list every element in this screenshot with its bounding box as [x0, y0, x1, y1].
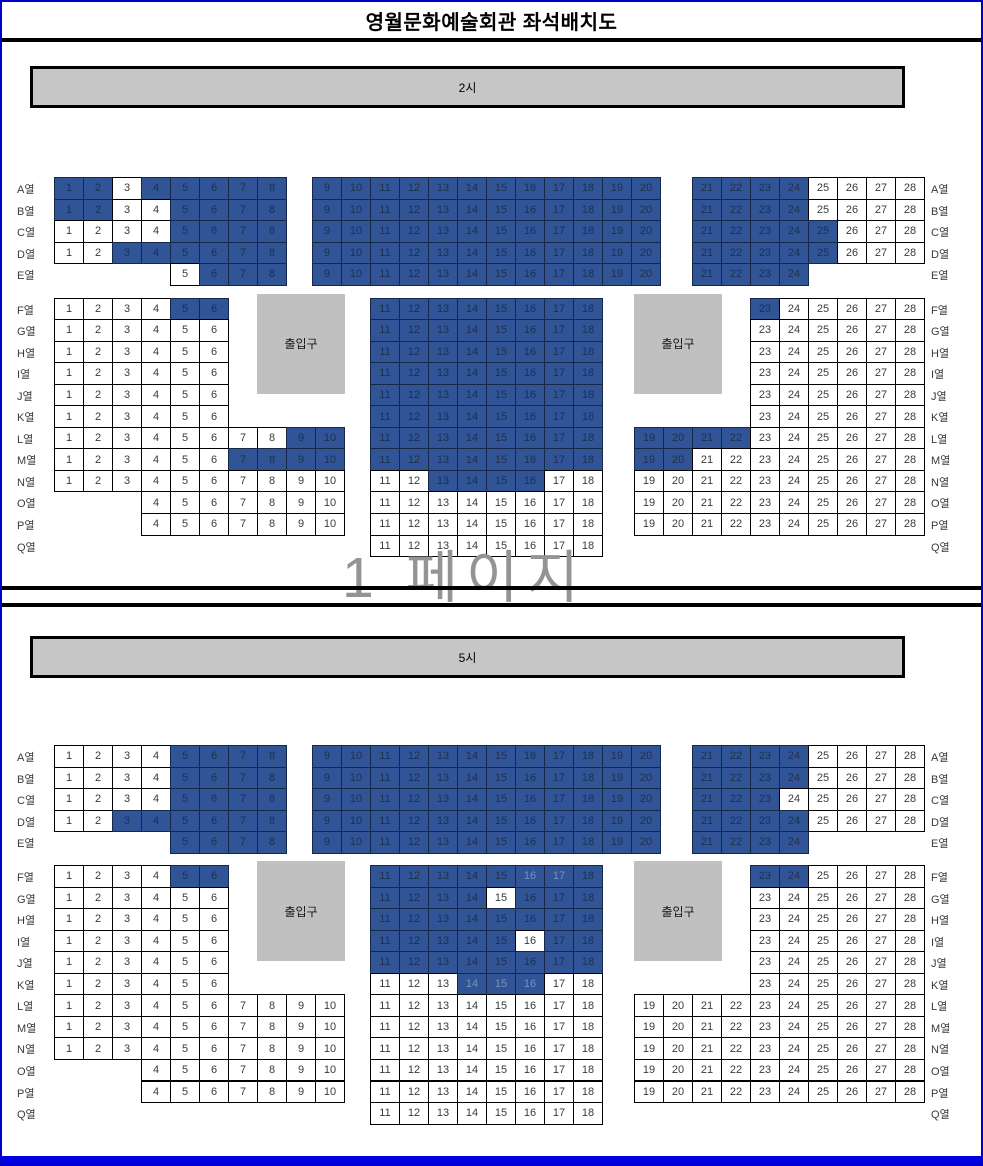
seat-s2-E19[interactable]: 19	[602, 831, 632, 854]
seat-s2-B1[interactable]: 1	[54, 767, 84, 790]
seat-s1-C25[interactable]: 25	[808, 220, 838, 243]
seat-s1-I1[interactable]: 1	[54, 362, 84, 385]
seat-s2-O9[interactable]: 9	[286, 1059, 316, 1082]
seat-s1-C4[interactable]: 4	[141, 220, 171, 243]
seat-s2-C3[interactable]: 3	[112, 788, 142, 811]
seat-s1-M9[interactable]: 9	[286, 448, 316, 471]
seat-s2-B9[interactable]: 9	[312, 767, 342, 790]
seat-s1-L13[interactable]: 13	[428, 427, 458, 450]
seat-s1-C24[interactable]: 24	[779, 220, 809, 243]
seat-s1-B6[interactable]: 6	[199, 199, 229, 222]
seat-s2-L11[interactable]: 11	[370, 994, 400, 1017]
seat-s2-H27[interactable]: 27	[866, 908, 896, 931]
seat-s1-L16[interactable]: 16	[515, 427, 545, 450]
seat-s1-B24[interactable]: 24	[779, 199, 809, 222]
seat-s1-K27[interactable]: 27	[866, 405, 896, 428]
seat-s1-D19[interactable]: 19	[602, 242, 632, 265]
seat-s1-C2[interactable]: 2	[83, 220, 113, 243]
seat-s1-D8[interactable]: 8	[257, 242, 287, 265]
seat-s2-O12[interactable]: 12	[399, 1059, 429, 1082]
seat-s1-H6[interactable]: 6	[199, 341, 229, 364]
seat-s1-L18[interactable]: 18	[573, 427, 603, 450]
seat-s2-L24[interactable]: 24	[779, 994, 809, 1017]
seat-s1-N17[interactable]: 17	[544, 470, 574, 493]
seat-s1-I26[interactable]: 26	[837, 362, 867, 385]
seat-s1-L26[interactable]: 26	[837, 427, 867, 450]
seat-s2-A2[interactable]: 2	[83, 745, 113, 768]
seat-s1-A3[interactable]: 3	[112, 177, 142, 200]
seat-s1-D28[interactable]: 28	[895, 242, 925, 265]
seat-s2-I25[interactable]: 25	[808, 930, 838, 953]
seat-s2-N22[interactable]: 22	[721, 1037, 751, 1060]
seat-s1-F3[interactable]: 3	[112, 298, 142, 321]
seat-s2-C28[interactable]: 28	[895, 788, 925, 811]
seat-s2-D11[interactable]: 11	[370, 810, 400, 833]
seat-s1-P24[interactable]: 24	[779, 513, 809, 536]
seat-s1-C10[interactable]: 10	[341, 220, 371, 243]
seat-s1-D11[interactable]: 11	[370, 242, 400, 265]
seat-s1-F14[interactable]: 14	[457, 298, 487, 321]
seat-s1-B17[interactable]: 17	[544, 199, 574, 222]
seat-s2-N1[interactable]: 1	[54, 1037, 84, 1060]
seat-s2-H4[interactable]: 4	[141, 908, 171, 931]
seat-s2-G11[interactable]: 11	[370, 887, 400, 910]
seat-s1-M5[interactable]: 5	[170, 448, 200, 471]
seat-s1-G17[interactable]: 17	[544, 319, 574, 342]
seat-s2-Q15[interactable]: 15	[486, 1102, 516, 1125]
seat-s2-M4[interactable]: 4	[141, 1016, 171, 1039]
seat-s1-E19[interactable]: 19	[602, 263, 632, 286]
seat-s2-G24[interactable]: 24	[779, 887, 809, 910]
seat-s2-N26[interactable]: 26	[837, 1037, 867, 1060]
seat-s2-N14[interactable]: 14	[457, 1037, 487, 1060]
seat-s1-C19[interactable]: 19	[602, 220, 632, 243]
seat-s2-F5[interactable]: 5	[170, 865, 200, 888]
seat-s1-J5[interactable]: 5	[170, 384, 200, 407]
seat-s2-N4[interactable]: 4	[141, 1037, 171, 1060]
seat-s2-M19[interactable]: 19	[634, 1016, 664, 1039]
seat-s1-B3[interactable]: 3	[112, 199, 142, 222]
seat-s2-O28[interactable]: 28	[895, 1059, 925, 1082]
seat-s2-C4[interactable]: 4	[141, 788, 171, 811]
seat-s2-I3[interactable]: 3	[112, 930, 142, 953]
seat-s1-K12[interactable]: 12	[399, 405, 429, 428]
seat-s2-K6[interactable]: 6	[199, 973, 229, 996]
seat-s2-N12[interactable]: 12	[399, 1037, 429, 1060]
seat-s1-D14[interactable]: 14	[457, 242, 487, 265]
seat-s1-B20[interactable]: 20	[631, 199, 661, 222]
seat-s2-L6[interactable]: 6	[199, 994, 229, 1017]
seat-s2-J18[interactable]: 18	[573, 951, 603, 974]
seat-s1-C18[interactable]: 18	[573, 220, 603, 243]
seat-s1-E5[interactable]: 5	[170, 263, 200, 286]
seat-s2-G5[interactable]: 5	[170, 887, 200, 910]
seat-s1-B25[interactable]: 25	[808, 199, 838, 222]
seat-s1-O13[interactable]: 13	[428, 491, 458, 514]
seat-s1-M25[interactable]: 25	[808, 448, 838, 471]
seat-s1-F12[interactable]: 12	[399, 298, 429, 321]
seat-s1-D10[interactable]: 10	[341, 242, 371, 265]
seat-s1-B13[interactable]: 13	[428, 199, 458, 222]
seat-s2-Q13[interactable]: 13	[428, 1102, 458, 1125]
seat-s2-J23[interactable]: 23	[750, 951, 780, 974]
seat-s2-D2[interactable]: 2	[83, 810, 113, 833]
seat-s2-L25[interactable]: 25	[808, 994, 838, 1017]
seat-s2-E6[interactable]: 6	[199, 831, 229, 854]
seat-s2-J25[interactable]: 25	[808, 951, 838, 974]
seat-s1-M2[interactable]: 2	[83, 448, 113, 471]
seat-s1-I28[interactable]: 28	[895, 362, 925, 385]
seat-s1-B9[interactable]: 9	[312, 199, 342, 222]
seat-s1-A27[interactable]: 27	[866, 177, 896, 200]
seat-s1-N6[interactable]: 6	[199, 470, 229, 493]
seat-s1-M8[interactable]: 8	[257, 448, 287, 471]
seat-s1-A26[interactable]: 26	[837, 177, 867, 200]
seat-s1-L3[interactable]: 3	[112, 427, 142, 450]
seat-s2-A11[interactable]: 11	[370, 745, 400, 768]
seat-s2-Q18[interactable]: 18	[573, 1102, 603, 1125]
seat-s2-K11[interactable]: 11	[370, 973, 400, 996]
seat-s2-O21[interactable]: 21	[692, 1059, 722, 1082]
seat-s2-M26[interactable]: 26	[837, 1016, 867, 1039]
seat-s1-I12[interactable]: 12	[399, 362, 429, 385]
seat-s1-C7[interactable]: 7	[228, 220, 258, 243]
seat-s2-G14[interactable]: 14	[457, 887, 487, 910]
seat-s1-F6[interactable]: 6	[199, 298, 229, 321]
seat-s1-I4[interactable]: 4	[141, 362, 171, 385]
seat-s2-B7[interactable]: 7	[228, 767, 258, 790]
seat-s1-C15[interactable]: 15	[486, 220, 516, 243]
seat-s2-A3[interactable]: 3	[112, 745, 142, 768]
seat-s2-A20[interactable]: 20	[631, 745, 661, 768]
seat-s2-C27[interactable]: 27	[866, 788, 896, 811]
seat-s2-N13[interactable]: 13	[428, 1037, 458, 1060]
seat-s2-J5[interactable]: 5	[170, 951, 200, 974]
seat-s1-B11[interactable]: 11	[370, 199, 400, 222]
seat-s1-C6[interactable]: 6	[199, 220, 229, 243]
seat-s1-E18[interactable]: 18	[573, 263, 603, 286]
seat-s2-K18[interactable]: 18	[573, 973, 603, 996]
seat-s1-D23[interactable]: 23	[750, 242, 780, 265]
seat-s2-K27[interactable]: 27	[866, 973, 896, 996]
seat-s2-A10[interactable]: 10	[341, 745, 371, 768]
seat-s2-H24[interactable]: 24	[779, 908, 809, 931]
seat-s1-K18[interactable]: 18	[573, 405, 603, 428]
seat-s1-O6[interactable]: 6	[199, 491, 229, 514]
seat-s2-P9[interactable]: 9	[286, 1081, 316, 1104]
seat-s2-E23[interactable]: 23	[750, 831, 780, 854]
seat-s2-D28[interactable]: 28	[895, 810, 925, 833]
seat-s2-H2[interactable]: 2	[83, 908, 113, 931]
seat-s2-C17[interactable]: 17	[544, 788, 574, 811]
seat-s2-N19[interactable]: 19	[634, 1037, 664, 1060]
seat-s1-G25[interactable]: 25	[808, 319, 838, 342]
seat-s1-C12[interactable]: 12	[399, 220, 429, 243]
seat-s1-J3[interactable]: 3	[112, 384, 142, 407]
seat-s1-O16[interactable]: 16	[515, 491, 545, 514]
seat-s2-L26[interactable]: 26	[837, 994, 867, 1017]
seat-s1-D21[interactable]: 21	[692, 242, 722, 265]
seat-s1-N22[interactable]: 22	[721, 470, 751, 493]
seat-s1-E15[interactable]: 15	[486, 263, 516, 286]
seat-s1-P8[interactable]: 8	[257, 513, 287, 536]
seat-s2-B27[interactable]: 27	[866, 767, 896, 790]
seat-s2-L9[interactable]: 9	[286, 994, 316, 1017]
seat-s2-I4[interactable]: 4	[141, 930, 171, 953]
seat-s2-D24[interactable]: 24	[779, 810, 809, 833]
seat-s2-K23[interactable]: 23	[750, 973, 780, 996]
seat-s1-K25[interactable]: 25	[808, 405, 838, 428]
seat-s1-E22[interactable]: 22	[721, 263, 751, 286]
seat-s2-M2[interactable]: 2	[83, 1016, 113, 1039]
seat-s2-K12[interactable]: 12	[399, 973, 429, 996]
seat-s1-N24[interactable]: 24	[779, 470, 809, 493]
seat-s1-N1[interactable]: 1	[54, 470, 84, 493]
seat-s2-D9[interactable]: 9	[312, 810, 342, 833]
seat-s2-C5[interactable]: 5	[170, 788, 200, 811]
seat-s2-B11[interactable]: 11	[370, 767, 400, 790]
seat-s2-A13[interactable]: 13	[428, 745, 458, 768]
seat-s2-J24[interactable]: 24	[779, 951, 809, 974]
seat-s1-N7[interactable]: 7	[228, 470, 258, 493]
seat-s2-P23[interactable]: 23	[750, 1081, 780, 1104]
seat-s2-I5[interactable]: 5	[170, 930, 200, 953]
seat-s2-D12[interactable]: 12	[399, 810, 429, 833]
seat-s1-K1[interactable]: 1	[54, 405, 84, 428]
seat-s1-D9[interactable]: 9	[312, 242, 342, 265]
seat-s1-A4[interactable]: 4	[141, 177, 171, 200]
seat-s1-K23[interactable]: 23	[750, 405, 780, 428]
seat-s2-P13[interactable]: 13	[428, 1081, 458, 1104]
seat-s2-D13[interactable]: 13	[428, 810, 458, 833]
seat-s1-N8[interactable]: 8	[257, 470, 287, 493]
seat-s1-L20[interactable]: 20	[663, 427, 693, 450]
seat-s2-A25[interactable]: 25	[808, 745, 838, 768]
seat-s2-K14[interactable]: 14	[457, 973, 487, 996]
seat-s2-G12[interactable]: 12	[399, 887, 429, 910]
seat-s1-O5[interactable]: 5	[170, 491, 200, 514]
seat-s1-E23[interactable]: 23	[750, 263, 780, 286]
seat-s2-D5[interactable]: 5	[170, 810, 200, 833]
seat-s1-A23[interactable]: 23	[750, 177, 780, 200]
seat-s1-I27[interactable]: 27	[866, 362, 896, 385]
seat-s1-M27[interactable]: 27	[866, 448, 896, 471]
seat-s2-L21[interactable]: 21	[692, 994, 722, 1017]
seat-s1-J4[interactable]: 4	[141, 384, 171, 407]
seat-s2-J14[interactable]: 14	[457, 951, 487, 974]
seat-s2-C24[interactable]: 24	[779, 788, 809, 811]
seat-s2-G2[interactable]: 2	[83, 887, 113, 910]
seat-s1-L14[interactable]: 14	[457, 427, 487, 450]
seat-s2-P20[interactable]: 20	[663, 1081, 693, 1104]
seat-s1-A13[interactable]: 13	[428, 177, 458, 200]
seat-s1-L27[interactable]: 27	[866, 427, 896, 450]
seat-s2-F11[interactable]: 11	[370, 865, 400, 888]
seat-s2-H18[interactable]: 18	[573, 908, 603, 931]
seat-s1-J24[interactable]: 24	[779, 384, 809, 407]
seat-s1-D13[interactable]: 13	[428, 242, 458, 265]
seat-s2-M5[interactable]: 5	[170, 1016, 200, 1039]
seat-s1-P10[interactable]: 10	[315, 513, 345, 536]
seat-s2-E8[interactable]: 8	[257, 831, 287, 854]
seat-s1-C11[interactable]: 11	[370, 220, 400, 243]
seat-s2-G26[interactable]: 26	[837, 887, 867, 910]
seat-s1-K16[interactable]: 16	[515, 405, 545, 428]
seat-s2-A26[interactable]: 26	[837, 745, 867, 768]
seat-s1-J6[interactable]: 6	[199, 384, 229, 407]
seat-s1-D24[interactable]: 24	[779, 242, 809, 265]
seat-s1-J12[interactable]: 12	[399, 384, 429, 407]
seat-s1-L23[interactable]: 23	[750, 427, 780, 450]
seat-s1-L1[interactable]: 1	[54, 427, 84, 450]
seat-s1-J17[interactable]: 17	[544, 384, 574, 407]
seat-s2-D19[interactable]: 19	[602, 810, 632, 833]
seat-s1-H28[interactable]: 28	[895, 341, 925, 364]
seat-s1-A22[interactable]: 22	[721, 177, 751, 200]
seat-s2-I14[interactable]: 14	[457, 930, 487, 953]
seat-s1-M24[interactable]: 24	[779, 448, 809, 471]
seat-s2-H12[interactable]: 12	[399, 908, 429, 931]
seat-s2-H1[interactable]: 1	[54, 908, 84, 931]
seat-s1-K4[interactable]: 4	[141, 405, 171, 428]
seat-s1-N19[interactable]: 19	[634, 470, 664, 493]
seat-s1-P21[interactable]: 21	[692, 513, 722, 536]
seat-s1-G24[interactable]: 24	[779, 319, 809, 342]
seat-s1-M15[interactable]: 15	[486, 448, 516, 471]
seat-s2-O25[interactable]: 25	[808, 1059, 838, 1082]
seat-s1-H14[interactable]: 14	[457, 341, 487, 364]
seat-s1-I23[interactable]: 23	[750, 362, 780, 385]
seat-s1-A28[interactable]: 28	[895, 177, 925, 200]
seat-s2-H23[interactable]: 23	[750, 908, 780, 931]
seat-s2-L13[interactable]: 13	[428, 994, 458, 1017]
seat-s2-G6[interactable]: 6	[199, 887, 229, 910]
seat-s2-P18[interactable]: 18	[573, 1081, 603, 1104]
seat-s1-C28[interactable]: 28	[895, 220, 925, 243]
seat-s1-N20[interactable]: 20	[663, 470, 693, 493]
seat-s2-J12[interactable]: 12	[399, 951, 429, 974]
seat-s1-F24[interactable]: 24	[779, 298, 809, 321]
seat-s2-E21[interactable]: 21	[692, 831, 722, 854]
seat-s1-L11[interactable]: 11	[370, 427, 400, 450]
seat-s1-P22[interactable]: 22	[721, 513, 751, 536]
seat-s2-M13[interactable]: 13	[428, 1016, 458, 1039]
seat-s2-A16[interactable]: 16	[515, 745, 545, 768]
seat-s1-B12[interactable]: 12	[399, 199, 429, 222]
seat-s2-N6[interactable]: 6	[199, 1037, 229, 1060]
seat-s2-G4[interactable]: 4	[141, 887, 171, 910]
seat-s1-D20[interactable]: 20	[631, 242, 661, 265]
seat-s1-I25[interactable]: 25	[808, 362, 838, 385]
seat-s2-D17[interactable]: 17	[544, 810, 574, 833]
seat-s2-P19[interactable]: 19	[634, 1081, 664, 1104]
seat-s2-C15[interactable]: 15	[486, 788, 516, 811]
seat-s2-P27[interactable]: 27	[866, 1081, 896, 1104]
seat-s1-G1[interactable]: 1	[54, 319, 84, 342]
seat-s1-G15[interactable]: 15	[486, 319, 516, 342]
seat-s2-H14[interactable]: 14	[457, 908, 487, 931]
seat-s1-J26[interactable]: 26	[837, 384, 867, 407]
seat-s2-D3[interactable]: 3	[112, 810, 142, 833]
seat-s2-A19[interactable]: 19	[602, 745, 632, 768]
seat-s1-C1[interactable]: 1	[54, 220, 84, 243]
seat-s2-B3[interactable]: 3	[112, 767, 142, 790]
seat-s2-J13[interactable]: 13	[428, 951, 458, 974]
seat-s2-N2[interactable]: 2	[83, 1037, 113, 1060]
seat-s1-C23[interactable]: 23	[750, 220, 780, 243]
seat-s1-B28[interactable]: 28	[895, 199, 925, 222]
seat-s2-P4[interactable]: 4	[141, 1081, 171, 1104]
seat-s1-K2[interactable]: 2	[83, 405, 113, 428]
seat-s1-P4[interactable]: 4	[141, 513, 171, 536]
seat-s1-L10[interactable]: 10	[315, 427, 345, 450]
seat-s2-E14[interactable]: 14	[457, 831, 487, 854]
seat-s1-E24[interactable]: 24	[779, 263, 809, 286]
seat-s2-B19[interactable]: 19	[602, 767, 632, 790]
seat-s1-P5[interactable]: 5	[170, 513, 200, 536]
seat-s1-L17[interactable]: 17	[544, 427, 574, 450]
seat-s1-F2[interactable]: 2	[83, 298, 113, 321]
seat-s2-D21[interactable]: 21	[692, 810, 722, 833]
seat-s2-C2[interactable]: 2	[83, 788, 113, 811]
seat-s2-F15[interactable]: 15	[486, 865, 516, 888]
seat-s1-A24[interactable]: 24	[779, 177, 809, 200]
seat-s2-A23[interactable]: 23	[750, 745, 780, 768]
seat-s2-M14[interactable]: 14	[457, 1016, 487, 1039]
seat-s1-K6[interactable]: 6	[199, 405, 229, 428]
seat-s1-C17[interactable]: 17	[544, 220, 574, 243]
seat-s2-O4[interactable]: 4	[141, 1059, 171, 1082]
seat-s1-B14[interactable]: 14	[457, 199, 487, 222]
seat-s1-F13[interactable]: 13	[428, 298, 458, 321]
seat-s2-B5[interactable]: 5	[170, 767, 200, 790]
seat-s2-E9[interactable]: 9	[312, 831, 342, 854]
seat-s1-D15[interactable]: 15	[486, 242, 516, 265]
seat-s2-G16[interactable]: 16	[515, 887, 545, 910]
seat-s2-M21[interactable]: 21	[692, 1016, 722, 1039]
seat-s1-O23[interactable]: 23	[750, 491, 780, 514]
seat-s2-M15[interactable]: 15	[486, 1016, 516, 1039]
seat-s2-H28[interactable]: 28	[895, 908, 925, 931]
seat-s1-H13[interactable]: 13	[428, 341, 458, 364]
seat-s1-P7[interactable]: 7	[228, 513, 258, 536]
seat-s2-F28[interactable]: 28	[895, 865, 925, 888]
seat-s2-L28[interactable]: 28	[895, 994, 925, 1017]
seat-s2-O8[interactable]: 8	[257, 1059, 287, 1082]
seat-s2-M17[interactable]: 17	[544, 1016, 574, 1039]
seat-s1-B21[interactable]: 21	[692, 199, 722, 222]
seat-s1-F23[interactable]: 23	[750, 298, 780, 321]
seat-s2-P25[interactable]: 25	[808, 1081, 838, 1104]
seat-s2-H6[interactable]: 6	[199, 908, 229, 931]
seat-s1-L24[interactable]: 24	[779, 427, 809, 450]
seat-s1-D6[interactable]: 6	[199, 242, 229, 265]
seat-s2-E11[interactable]: 11	[370, 831, 400, 854]
seat-s2-M10[interactable]: 10	[315, 1016, 345, 1039]
seat-s2-J26[interactable]: 26	[837, 951, 867, 974]
seat-s2-O10[interactable]: 10	[315, 1059, 345, 1082]
seat-s1-D12[interactable]: 12	[399, 242, 429, 265]
seat-s2-O15[interactable]: 15	[486, 1059, 516, 1082]
seat-s1-H3[interactable]: 3	[112, 341, 142, 364]
seat-s1-E20[interactable]: 20	[631, 263, 661, 286]
seat-s2-P10[interactable]: 10	[315, 1081, 345, 1104]
seat-s2-O19[interactable]: 19	[634, 1059, 664, 1082]
seat-s2-O16[interactable]: 16	[515, 1059, 545, 1082]
seat-s1-C8[interactable]: 8	[257, 220, 287, 243]
seat-s1-I16[interactable]: 16	[515, 362, 545, 385]
seat-s1-E13[interactable]: 13	[428, 263, 458, 286]
